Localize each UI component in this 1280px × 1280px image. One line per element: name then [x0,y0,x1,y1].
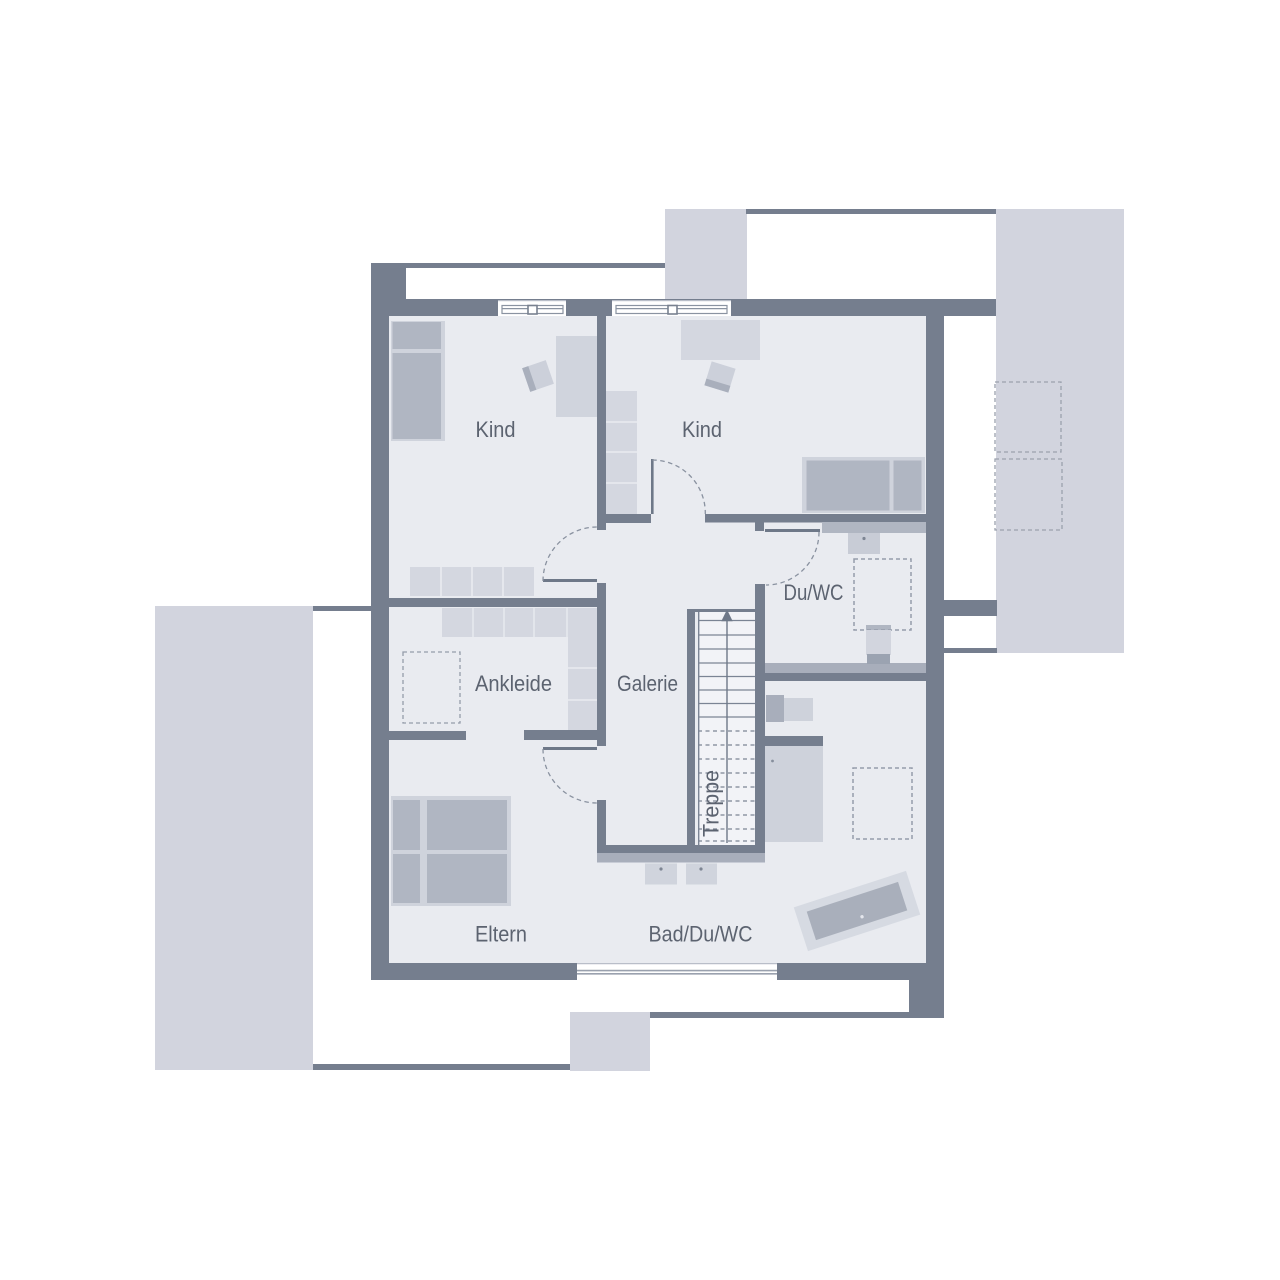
svg-text:Galerie: Galerie [617,671,678,696]
svg-text:Treppe: Treppe [699,770,724,837]
svg-text:Bad/Du/WC: Bad/Du/WC [649,922,753,947]
svg-text:Ankleide: Ankleide [475,671,552,696]
svg-text:Eltern: Eltern [475,922,527,947]
svg-text:Kind: Kind [476,417,516,442]
svg-text:Kind: Kind [682,417,722,442]
svg-text:Du/WC: Du/WC [784,580,844,605]
